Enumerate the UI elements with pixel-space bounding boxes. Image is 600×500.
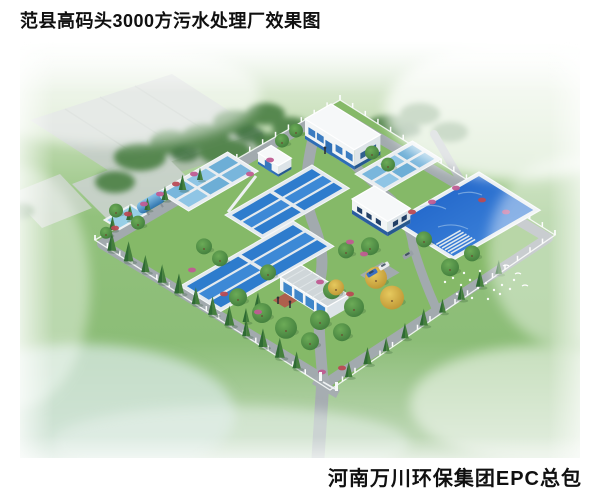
- bottom-edge-fade: [20, 436, 580, 458]
- tree-crown: [338, 242, 354, 258]
- white-bird: [479, 270, 481, 272]
- white-bird: [452, 277, 454, 279]
- flower-bush: [156, 192, 164, 197]
- tree-crown: [301, 332, 319, 350]
- flower-bush: [140, 202, 148, 207]
- tree-crown: [131, 216, 145, 230]
- flower-bush: [220, 292, 228, 297]
- page-title: 范县高码头3000方污水处理厂效果图: [20, 7, 321, 33]
- white-bird: [463, 272, 465, 274]
- flower-bush: [188, 268, 196, 273]
- white-bird: [444, 281, 446, 283]
- tree-crown: [381, 158, 395, 172]
- aerial-rendering: [20, 42, 580, 458]
- tree-crown: [275, 317, 297, 339]
- flower-bush: [316, 280, 324, 285]
- white-bird: [487, 298, 489, 300]
- white-bird: [477, 287, 479, 289]
- tree-crown: [328, 279, 344, 295]
- tree-crown: [212, 250, 228, 266]
- tree-shadow: [198, 180, 206, 183]
- white-bird: [456, 293, 458, 295]
- white-bird: [469, 279, 471, 281]
- tree-crown: [196, 238, 212, 254]
- white-bird: [460, 284, 462, 286]
- flower-bush: [111, 226, 119, 231]
- flower-bush: [346, 292, 354, 297]
- tree-shadow: [384, 351, 393, 354]
- white-bird: [485, 282, 487, 284]
- gate-pillar: [319, 372, 322, 381]
- flower-bush: [478, 198, 486, 203]
- flower-bush: [266, 158, 274, 163]
- person-head: [277, 297, 280, 300]
- epc-credit: 河南万川环保集团EPC总包: [328, 462, 582, 491]
- tree-shadow: [163, 200, 172, 203]
- tree-shadow: [402, 338, 412, 341]
- tree-crown: [416, 231, 432, 247]
- tree-crown: [380, 286, 404, 310]
- tree-shadow: [458, 299, 468, 302]
- right-edge-fade: [548, 42, 580, 458]
- flower-bush: [346, 240, 354, 245]
- flower-bush: [254, 310, 262, 315]
- flower-bush: [338, 366, 346, 371]
- tree-crown: [464, 245, 480, 261]
- person-head: [324, 147, 327, 150]
- tree-crown: [275, 134, 289, 148]
- flower-bush: [246, 172, 254, 177]
- flower-bush: [360, 252, 368, 257]
- top-edge-fade: [20, 42, 580, 94]
- left-edge-fade: [20, 42, 54, 458]
- tree-crown: [109, 204, 123, 218]
- tree-shadow: [244, 322, 253, 325]
- tree-shadow: [346, 377, 356, 380]
- person-head: [289, 301, 292, 304]
- flower-bush: [172, 182, 180, 187]
- flower-bush: [124, 212, 132, 217]
- tree-crown: [344, 297, 364, 317]
- flower-bush: [428, 200, 436, 205]
- tree-crown: [100, 227, 112, 239]
- tree-shadow: [180, 190, 190, 193]
- flower-bush: [408, 210, 416, 215]
- flower-bush: [452, 186, 460, 191]
- tree-shadow: [146, 210, 154, 213]
- tree-crown: [333, 323, 351, 341]
- page: { "page": { "background": "#ffffff", "ti…: [0, 0, 600, 500]
- gate-pillar: [335, 382, 338, 391]
- tree-crown: [441, 258, 459, 276]
- tree-crown: [310, 310, 330, 330]
- tree-crown: [260, 264, 276, 280]
- flower-bush: [190, 172, 198, 177]
- tree-crown: [229, 288, 247, 306]
- tree-crown: [289, 124, 303, 138]
- tree-crown: [365, 146, 379, 160]
- rendering-figure: [20, 42, 580, 458]
- white-bird: [471, 297, 473, 299]
- tree-shadow: [440, 312, 449, 315]
